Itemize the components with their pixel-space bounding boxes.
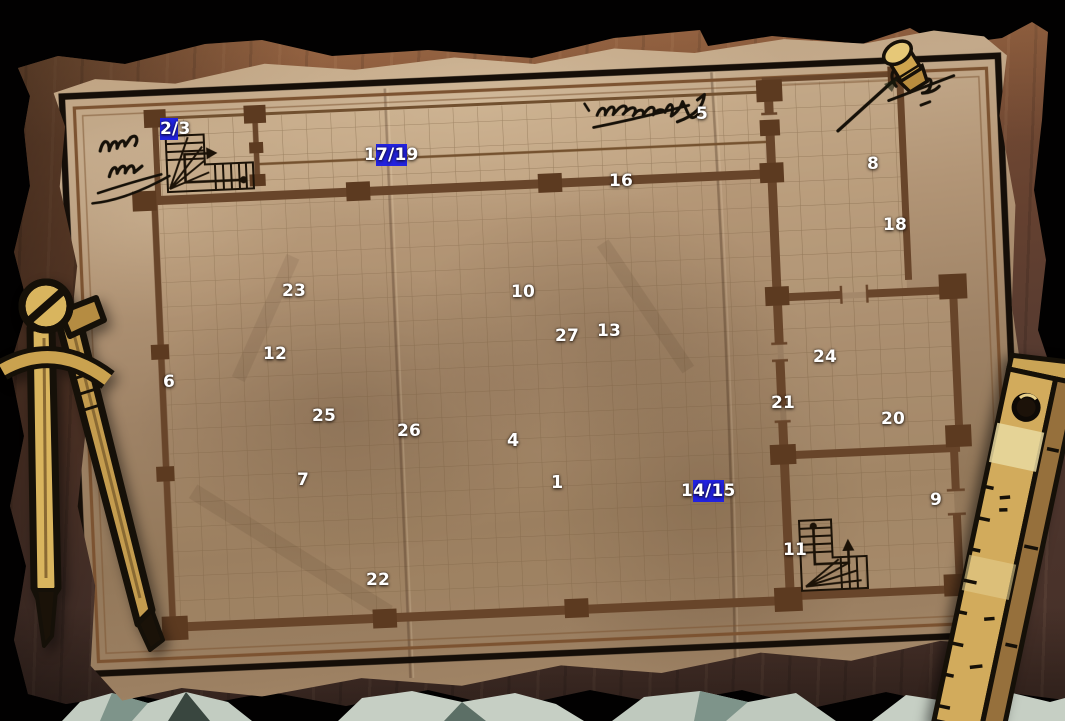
selection-highlight: 4/1: [693, 480, 723, 502]
map-marker-21[interactable]: 21: [771, 393, 795, 413]
map-marker-8[interactable]: 8: [867, 154, 879, 174]
map-marker-1[interactable]: 1: [551, 473, 563, 493]
game-screen: { "scene": { "description": "Hand-drawn …: [0, 0, 1065, 721]
map-marker-4[interactable]: 4: [507, 431, 519, 451]
map-marker-6[interactable]: 6: [163, 372, 175, 392]
map-marker-13[interactable]: 13: [597, 321, 621, 341]
map-marker-5[interactable]: 5: [696, 104, 708, 124]
map-marker-14-15[interactable]: 14/15: [681, 481, 736, 501]
map-marker-12[interactable]: 12: [263, 344, 287, 364]
map-marker-16[interactable]: 16: [609, 171, 633, 191]
map-marker-9[interactable]: 9: [930, 490, 942, 510]
map-marker-24[interactable]: 24: [813, 347, 837, 367]
map-marker-17-19[interactable]: 17/19: [364, 145, 419, 165]
map-marker-2-3[interactable]: 2/3: [160, 119, 190, 139]
map-marker-27[interactable]: 27: [555, 326, 579, 346]
map-marker-11[interactable]: 11: [783, 540, 807, 560]
map-marker-25[interactable]: 25: [312, 406, 336, 426]
map-marker-22[interactable]: 22: [366, 570, 390, 590]
map-marker-23[interactable]: 23: [282, 281, 306, 301]
map-marker-26[interactable]: 26: [397, 421, 421, 441]
selection-highlight: 2/: [160, 118, 178, 140]
marker-layer: 2/317/195168182310271312246212520264114/…: [0, 0, 1065, 721]
map-marker-20[interactable]: 20: [881, 409, 905, 429]
map-marker-7[interactable]: 7: [297, 470, 309, 490]
map-marker-10[interactable]: 10: [511, 282, 535, 302]
map-marker-18[interactable]: 18: [883, 215, 907, 235]
selection-highlight: 7/1: [376, 144, 406, 166]
